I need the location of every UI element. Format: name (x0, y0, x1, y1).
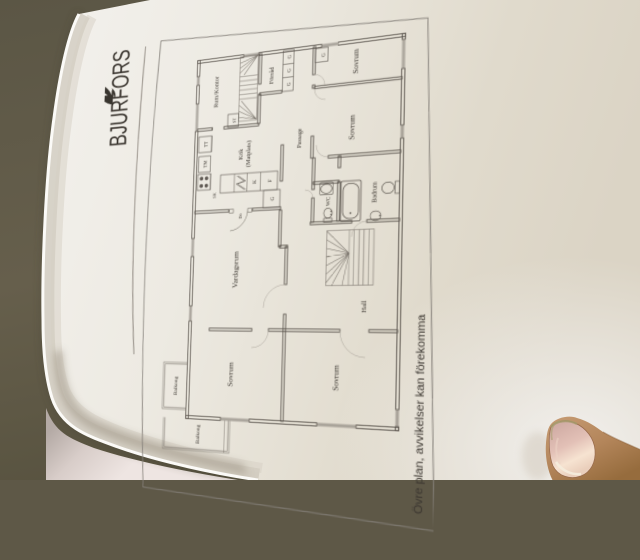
svg-text:Passage: Passage (297, 127, 304, 148)
svg-text:F: F (268, 179, 273, 183)
svg-text:WC: WC (326, 196, 332, 207)
svg-text:Balkong: Balkong (174, 376, 180, 396)
svg-text:Övre plan, avvikelser kan före: Övre plan, avvikelser kan förekomma (412, 313, 429, 514)
svg-text:(Matplats): (Matplats) (245, 140, 253, 167)
svg-text:Balkong: Balkong (196, 424, 202, 444)
svg-text:Dö: Dö (239, 213, 243, 219)
svg-text:G: G (286, 81, 292, 86)
svg-text:Kök: Kök (238, 148, 245, 160)
svg-text:Badrum: Badrum (372, 181, 380, 203)
svg-text:Hall: Hall (361, 300, 368, 313)
svg-text:G: G (287, 54, 293, 59)
svg-text:Sovrum: Sovrum (332, 364, 341, 391)
svg-text:Sovrum: Sovrum (227, 361, 235, 387)
svg-text:Rum/Kontor: Rum/Kontor (214, 76, 221, 108)
svg-text:Sovrum: Sovrum (348, 113, 357, 140)
svg-text:G: G (271, 196, 277, 201)
svg-text:SK: SK (212, 192, 217, 198)
svg-text:TT: TT (203, 141, 208, 148)
svg-text:ST: ST (232, 117, 237, 123)
svg-text:TM: TM (203, 160, 208, 168)
svg-text:Sovrum: Sovrum (352, 47, 361, 74)
svg-text:Förråd: Förråd (268, 66, 276, 84)
svg-text:G: G (286, 67, 292, 72)
svg-text:Vardagsrum: Vardagsrum (232, 250, 240, 288)
svg-text:G: G (320, 52, 326, 57)
svg-text:K: K (253, 179, 258, 184)
